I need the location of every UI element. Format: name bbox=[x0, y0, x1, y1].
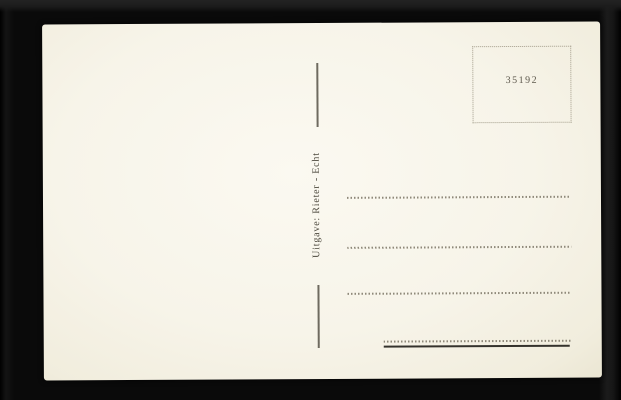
divider-line-top bbox=[316, 63, 318, 127]
stamp-box: 35192 bbox=[472, 46, 571, 124]
divider-line-bottom bbox=[317, 285, 319, 348]
stamp-box-number: 35192 bbox=[506, 75, 539, 86]
postcard-back: 35192 Uitgave: Rieter - Echt bbox=[42, 22, 602, 381]
address-bottom-rule bbox=[384, 345, 570, 348]
address-line bbox=[384, 340, 572, 342]
address-line bbox=[347, 196, 571, 199]
address-line bbox=[347, 246, 571, 249]
address-line bbox=[347, 292, 571, 295]
publisher-credit: Uitgave: Rieter - Echt bbox=[311, 140, 326, 270]
